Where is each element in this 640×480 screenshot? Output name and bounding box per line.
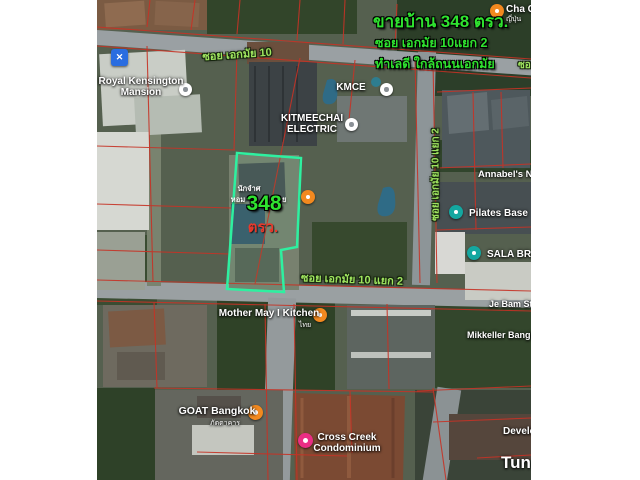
hardware-store-icon[interactable]: ✕ bbox=[111, 49, 128, 66]
place-label-tun[interactable]: Tun bbox=[501, 453, 531, 472]
street-label: ซอย bbox=[518, 58, 531, 73]
place-label-development[interactable]: Developme bbox=[503, 426, 531, 437]
place-label-sala[interactable]: SALA BRAN bbox=[487, 249, 531, 260]
place-sublabel-goat: ภัตตาคาร bbox=[210, 420, 240, 428]
poi-marker-icon[interactable] bbox=[380, 83, 393, 96]
street-label: ซอย เอกมัย 10 bbox=[202, 43, 273, 66]
place-sublabel-mother-may: ไทย bbox=[299, 322, 311, 330]
place-label-kmce[interactable]: KMCE bbox=[336, 82, 365, 93]
place-label-kitmeechai[interactable]: KITMEECHAIELECTRIC bbox=[281, 113, 343, 135]
place-label-annabels[interactable]: Annabel's Nu bbox=[478, 170, 531, 181]
plot-area-unit: ตรว. bbox=[248, 215, 278, 239]
advert-title: ขายบ้าน 348 ตรว. bbox=[373, 8, 508, 35]
plot-area-number: 348 bbox=[246, 192, 281, 216]
satellite-map[interactable]: ซอย เอกมัย 10ซอย เอกมัย 10 แยก 2ซอย เอกม… bbox=[97, 0, 531, 480]
place-label-goat[interactable]: GOAT Bangkok bbox=[179, 406, 256, 418]
place-label-royal-kensington[interactable]: Royal KensingtonMansion bbox=[98, 76, 183, 98]
advert-subtitle-location: ทำเลดี ใกล้ถนนเอกมัย bbox=[375, 54, 495, 74]
hotel-marker-icon[interactable] bbox=[298, 433, 313, 448]
restaurant-marker-icon[interactable] bbox=[301, 190, 315, 204]
street-label: ซอย เอกมัย 10 แยก 2 bbox=[301, 268, 404, 290]
place-label-je-bam[interactable]: Je Bam Stu bbox=[489, 299, 531, 309]
place-label-cross-creek[interactable]: Cross CreekCondominium bbox=[313, 432, 380, 454]
place-label-mother-may[interactable]: Mother May I Kitchen bbox=[219, 308, 320, 319]
poi-marker-icon[interactable] bbox=[345, 118, 358, 131]
place-label-mikkeller[interactable]: Mikkeller Bangkok bbox=[467, 330, 531, 340]
plot-note-2: หอม bbox=[231, 194, 245, 206]
screenshot-frame: ซอย เอกมัย 10ซอย เอกมัย 10 แยก 2ซอย เอกม… bbox=[0, 0, 640, 480]
street-label: ซอย เอกมัย 10 แยก 2 bbox=[429, 128, 444, 221]
store-marker-icon[interactable] bbox=[467, 246, 481, 260]
fitness-marker-icon[interactable] bbox=[449, 205, 463, 219]
place-label-cha[interactable]: Cha C bbox=[506, 4, 531, 15]
place-label-pilates[interactable]: Pilates Base bbox=[469, 208, 528, 219]
advert-subtitle-street: ซอย เอกมัย 10แยก 2 bbox=[375, 33, 487, 53]
